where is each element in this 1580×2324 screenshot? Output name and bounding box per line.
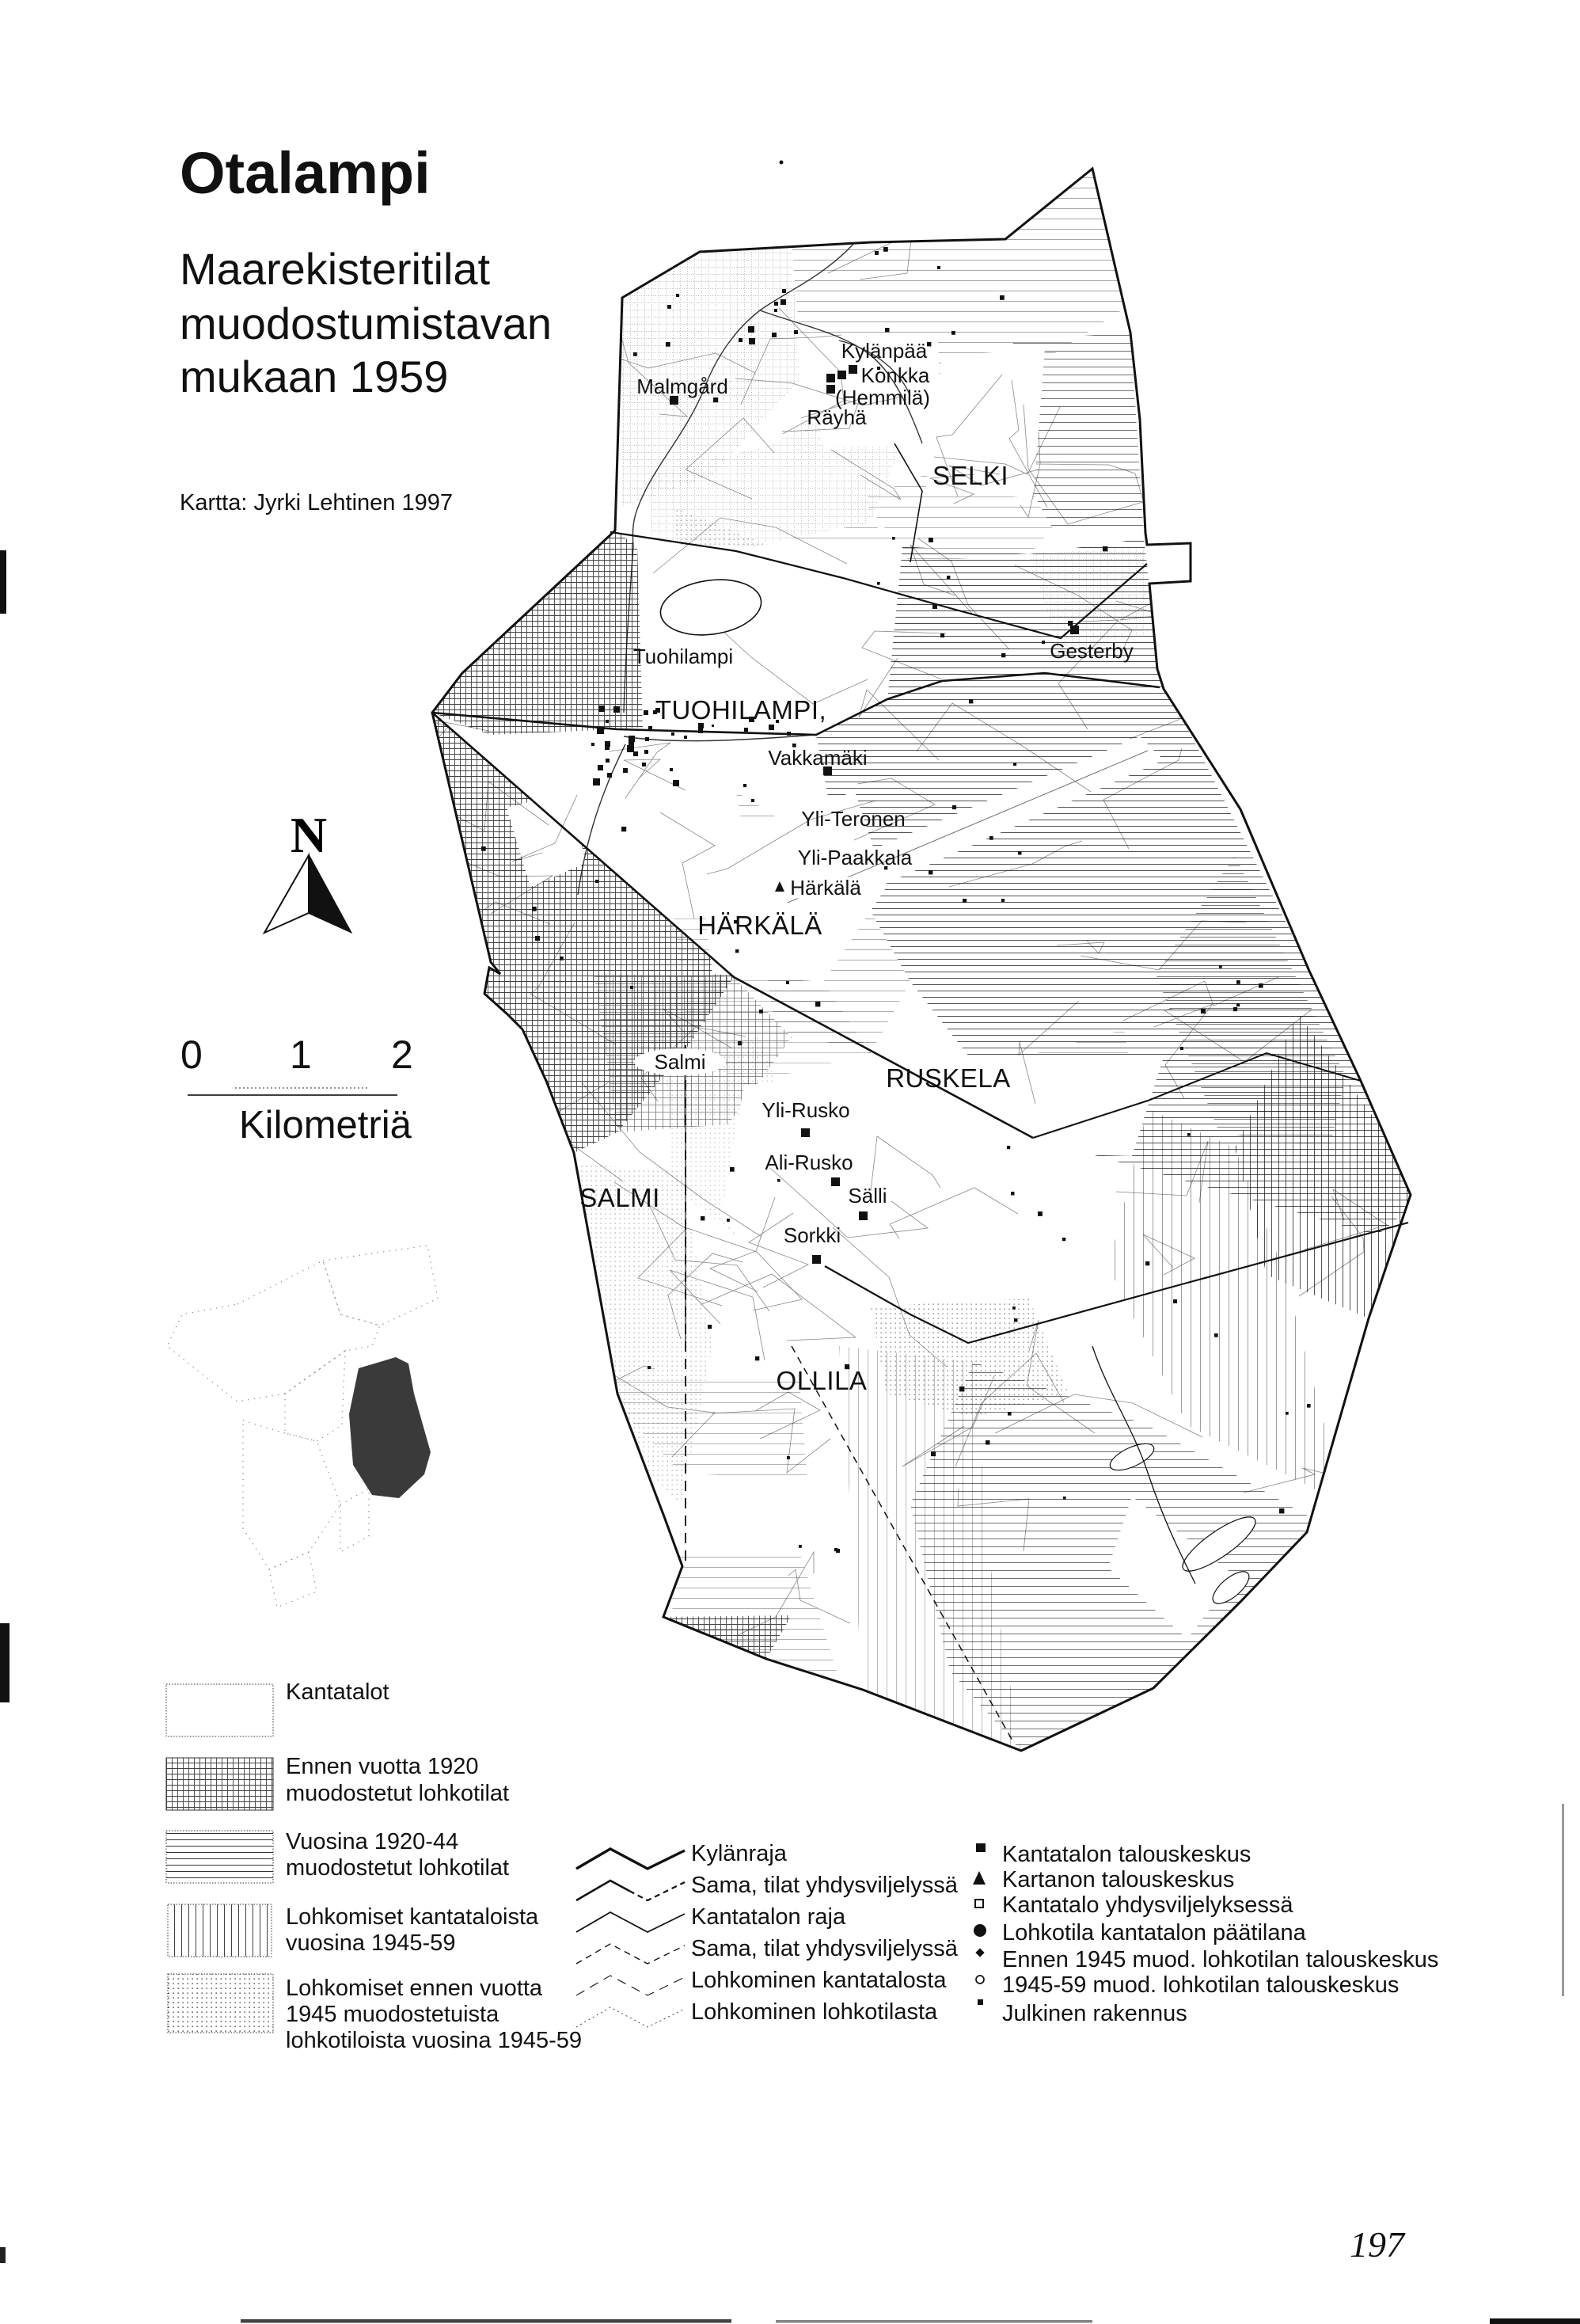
svg-text:OLLILA: OLLILA bbox=[777, 1366, 868, 1395]
svg-text:lohkotiloista vuosina 1945-59: lohkotiloista vuosina 1945-59 bbox=[286, 2028, 582, 2053]
svg-text:1945-59 muod. lohkotilan talou: 1945-59 muod. lohkotilan talouskeskus bbox=[1002, 1972, 1399, 1998]
svg-text:Räyhä: Räyhä bbox=[807, 405, 867, 429]
svg-text:muodostetut lohkotilat: muodostetut lohkotilat bbox=[286, 1855, 509, 1881]
svg-text:Kantatalon talouskeskus: Kantatalon talouskeskus bbox=[1002, 1842, 1251, 1867]
svg-text:1: 1 bbox=[290, 1033, 312, 1077]
svg-text:muodostumistavan: muodostumistavan bbox=[180, 299, 552, 348]
svg-text:Kylänpää: Kylänpää bbox=[841, 339, 928, 363]
svg-text:Kantatalot: Kantatalot bbox=[286, 1679, 389, 1705]
svg-text:Kantatalo yhdysviljelyksessä: Kantatalo yhdysviljelyksessä bbox=[1002, 1892, 1293, 1918]
svg-text:Sama, tilat yhdysviljelyssä: Sama, tilat yhdysviljelyssä bbox=[691, 1873, 959, 1898]
svg-text:mukaan 1959: mukaan 1959 bbox=[180, 352, 448, 401]
svg-text:Konkka: Konkka bbox=[861, 363, 930, 387]
svg-text:Otalampi: Otalampi bbox=[180, 140, 431, 206]
svg-text:SALMI: SALMI bbox=[579, 1183, 660, 1212]
svg-text:Yli-Paakkala: Yli-Paakkala bbox=[798, 846, 913, 869]
svg-text:2: 2 bbox=[391, 1033, 413, 1077]
svg-text:Sälli: Sälli bbox=[848, 1184, 887, 1208]
svg-text:Malmgård: Malmgård bbox=[636, 375, 728, 398]
svg-text:Lohkominen kantatalosta: Lohkominen kantatalosta bbox=[691, 1968, 947, 1993]
svg-text:Ennen 1945 muod. lohkotilan ta: Ennen 1945 muod. lohkotilan talouskeskus bbox=[1002, 1947, 1438, 1972]
svg-text:Lohkotila kantatalon päätilana: Lohkotila kantatalon päätilana bbox=[1002, 1920, 1307, 1946]
svg-text:vuosina 1945-59: vuosina 1945-59 bbox=[286, 1930, 455, 1956]
svg-text:Julkinen rakennus: Julkinen rakennus bbox=[1002, 2001, 1187, 2026]
svg-text:Kylänraja: Kylänraja bbox=[691, 1841, 788, 1866]
svg-text:Lohkomiset ennen vuotta: Lohkomiset ennen vuotta bbox=[286, 1976, 543, 2001]
svg-text:Lohkominen lohkotilasta: Lohkominen lohkotilasta bbox=[691, 1999, 938, 2025]
svg-text:Kartta: Jyrki Lehtinen 1997: Kartta: Jyrki Lehtinen 1997 bbox=[180, 490, 453, 515]
svg-text:Tuohilampi: Tuohilampi bbox=[633, 645, 733, 668]
svg-text:Vuosina 1920-44: Vuosina 1920-44 bbox=[286, 1829, 458, 1854]
svg-text:0: 0 bbox=[180, 1033, 203, 1077]
svg-text:Sorkki: Sorkki bbox=[784, 1223, 841, 1247]
svg-text:Gesterby: Gesterby bbox=[1050, 639, 1134, 663]
svg-text:Ali-Rusko: Ali-Rusko bbox=[765, 1151, 853, 1174]
svg-text:Kantatalon raja: Kantatalon raja bbox=[691, 1904, 846, 1930]
svg-text:SELKI: SELKI bbox=[932, 461, 1008, 490]
svg-text:Ennen vuotta 1920: Ennen vuotta 1920 bbox=[286, 1754, 478, 1779]
svg-text:Härkälä: Härkälä bbox=[790, 876, 861, 900]
svg-text:Vakkamäki: Vakkamäki bbox=[768, 746, 867, 770]
svg-text:Yli-Rusko: Yli-Rusko bbox=[762, 1098, 849, 1122]
svg-text:Sama, tilat yhdysviljelyssä: Sama, tilat yhdysviljelyssä bbox=[691, 1936, 959, 1961]
svg-text:Kartanon talouskeskus: Kartanon talouskeskus bbox=[1002, 1867, 1234, 1892]
svg-text:Kilometriä: Kilometriä bbox=[239, 1104, 412, 1147]
svg-text:TUOHILAMPI,: TUOHILAMPI, bbox=[655, 695, 826, 725]
svg-text:197: 197 bbox=[1350, 2224, 1406, 2265]
svg-text:1945 muodostetuista: 1945 muodostetuista bbox=[286, 2002, 499, 2027]
svg-text:Yli-Teronen: Yli-Teronen bbox=[801, 807, 906, 831]
svg-text:muodostetut lohkotilat: muodostetut lohkotilat bbox=[286, 1781, 509, 1806]
svg-text:Lohkomiset kantataloista: Lohkomiset kantataloista bbox=[286, 1904, 539, 1930]
svg-text:RUSKELA: RUSKELA bbox=[886, 1063, 1011, 1093]
svg-text:Salmi: Salmi bbox=[654, 1050, 705, 1074]
svg-text:HÄRKÄLÄ: HÄRKÄLÄ bbox=[697, 911, 822, 940]
svg-text:Maarekisteritilat: Maarekisteritilat bbox=[180, 244, 491, 294]
